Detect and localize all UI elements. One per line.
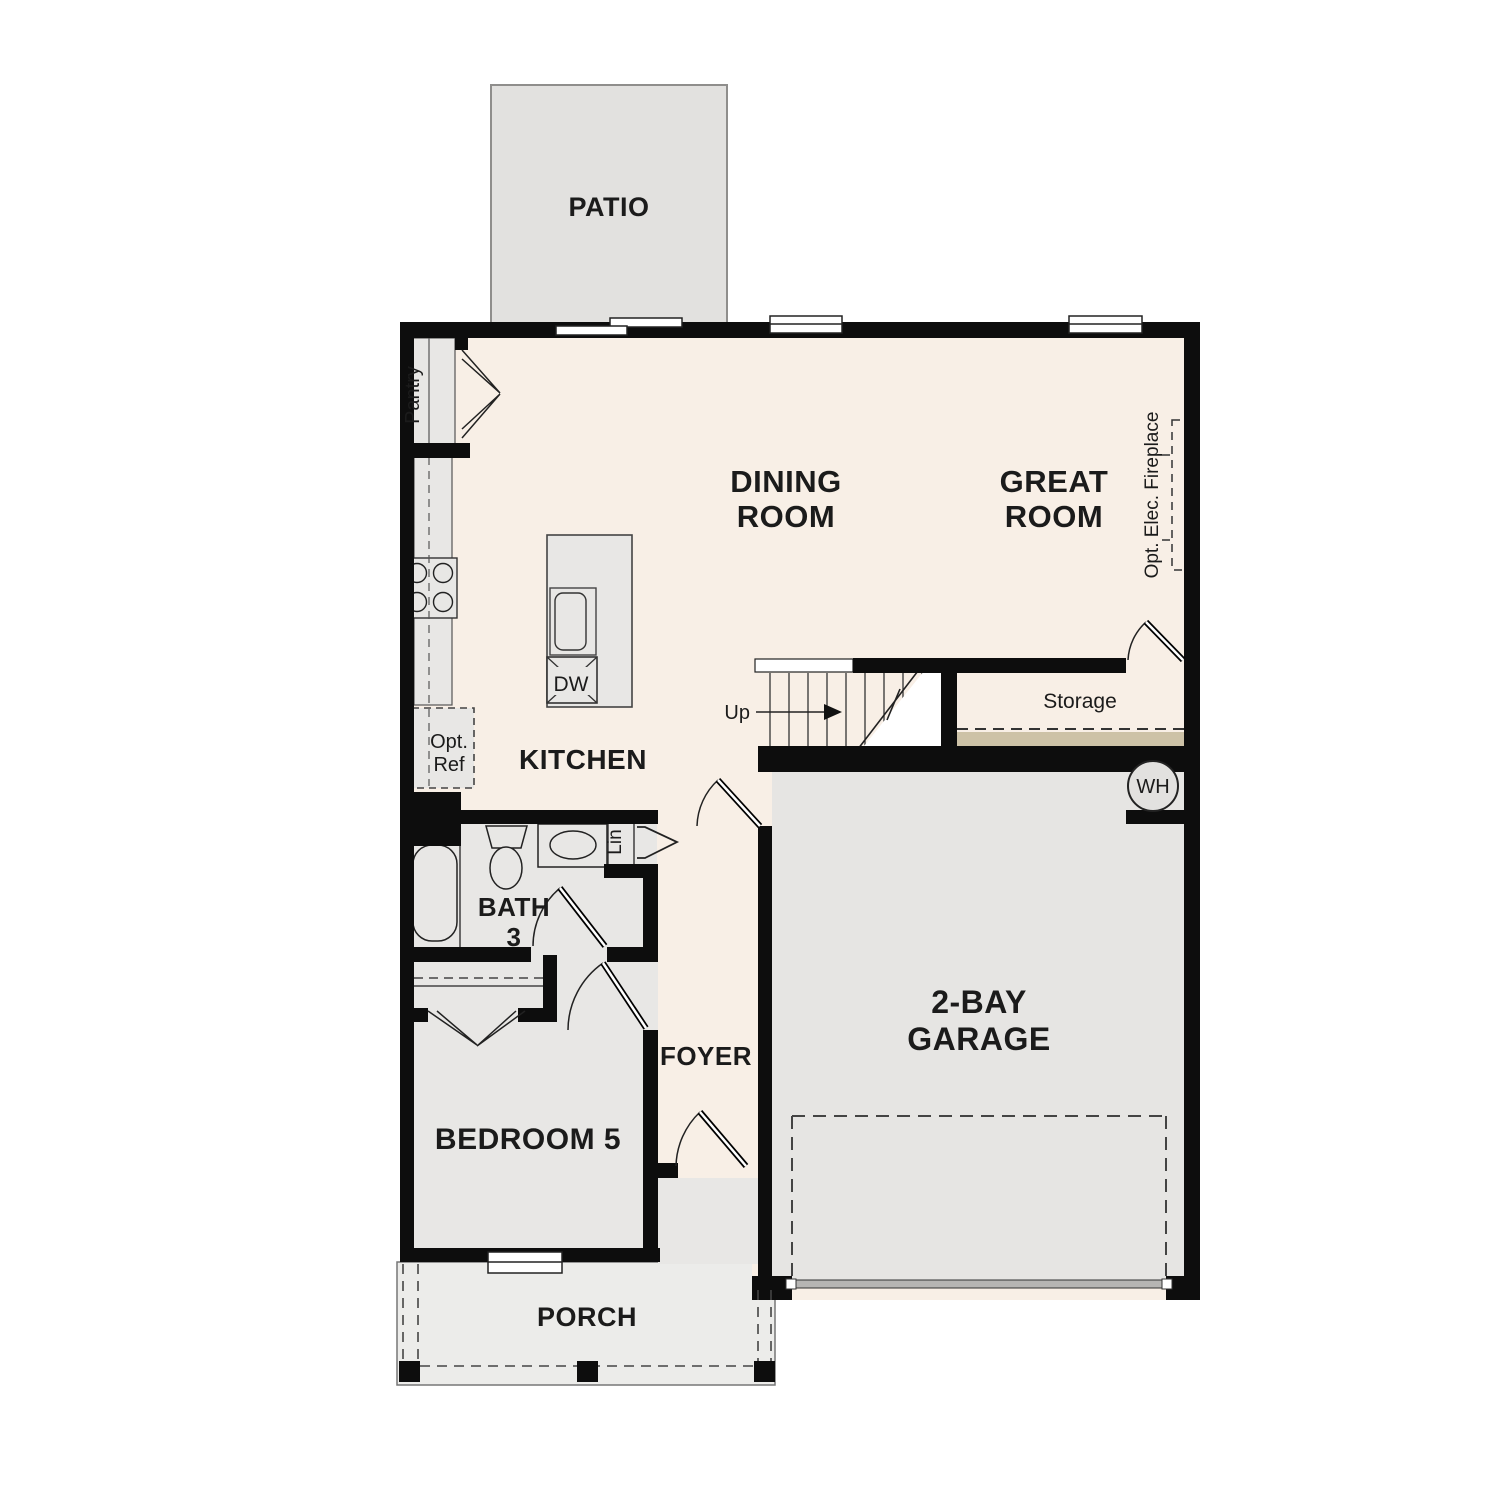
entry-stoop-region [658, 1178, 772, 1264]
opt-ref-label-2: Ref [433, 754, 465, 776]
bath-label-1: BATH [478, 892, 550, 922]
wall-closet-east [543, 955, 557, 1010]
wall-closet-stub-right [518, 1008, 557, 1022]
patio-label: PATIO [569, 192, 650, 222]
wall-stair-top [853, 658, 1126, 673]
foyer-label: FOYER [660, 1041, 752, 1071]
great-room-label-1: GREAT [1000, 464, 1109, 499]
water-heater-icon: WH [1128, 761, 1178, 811]
sliding-door-panel-lower [556, 326, 627, 335]
bath-label-2: 3 [507, 922, 522, 952]
up-label: Up [724, 702, 750, 724]
porch-label: PORCH [537, 1302, 637, 1332]
bedroom-region [407, 955, 658, 1260]
wall-garage-top [758, 746, 1200, 772]
wall-garage-west [758, 826, 772, 1282]
wall-bath-south-right [607, 947, 658, 962]
garage-label-1: 2-BAY [931, 984, 1027, 1020]
opt-fireplace-label: Opt. Elec. Fireplace [1142, 412, 1163, 579]
floor-plan-page: WH PATIO DINING ROOM GREAT ROOM KITCHEN … [0, 0, 1500, 1500]
great-room-label-2: ROOM [1005, 499, 1103, 534]
wall-closet-stub-left [400, 1008, 428, 1022]
floor-plan-svg: WH PATIO DINING ROOM GREAT ROOM KITCHEN … [0, 0, 1500, 1500]
kitchen-label: KITCHEN [519, 744, 647, 775]
porch-post [754, 1361, 775, 1382]
opt-ref-label-1: Opt. [430, 731, 468, 753]
wall-foyer-west-lower [643, 1030, 658, 1262]
toilet-tank-icon [486, 826, 527, 848]
wall-wh-niche [1126, 810, 1184, 824]
porch-post [577, 1361, 598, 1382]
lin-label: Lin [605, 829, 626, 854]
storage-tan-strip [957, 732, 1184, 746]
storage-label: Storage [1043, 690, 1117, 713]
dw-label: DW [554, 673, 589, 696]
stair-landing [755, 659, 853, 672]
toilet-bowl-icon [490, 847, 522, 889]
tub-icon [413, 845, 457, 941]
garage-label-2: GARAGE [907, 1021, 1050, 1057]
wall-stair-east [941, 658, 957, 748]
dining-label-2: ROOM [737, 499, 835, 534]
wall-lin-south [604, 864, 658, 878]
wh-label: WH [1136, 776, 1169, 798]
wall-pantry-bottom [400, 443, 470, 458]
pantry-label: Pantry [402, 366, 424, 424]
wall-kitchen-sw [400, 792, 461, 846]
dining-label-1: DINING [730, 464, 842, 499]
wall-bath-north [455, 810, 658, 824]
wall-right [1184, 322, 1200, 1300]
wall-foyer-south-stub [643, 1163, 678, 1178]
garage-region [772, 760, 1184, 1280]
bedroom-label: BEDROOM 5 [435, 1123, 621, 1156]
porch-post [399, 1361, 420, 1382]
wall-pantry-stub [455, 330, 468, 350]
